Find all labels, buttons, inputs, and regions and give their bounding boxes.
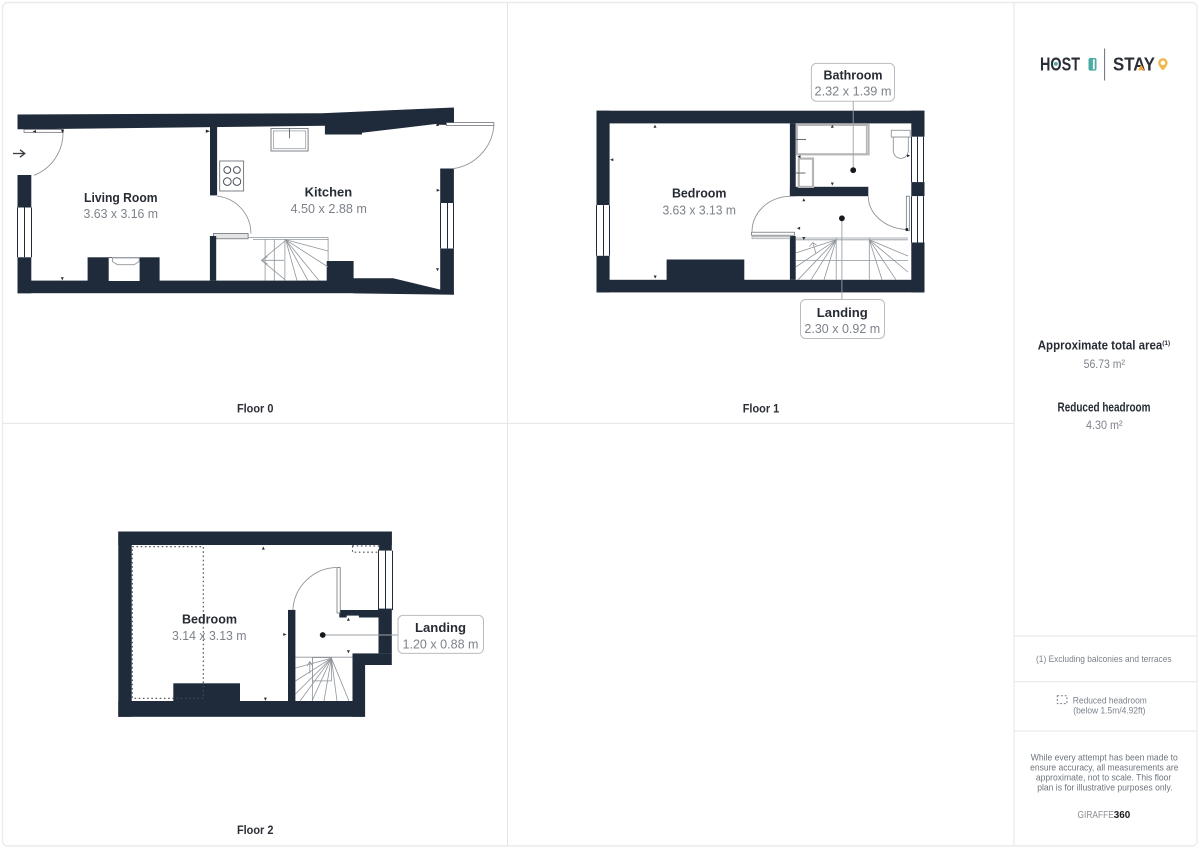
svg-text:2.32 x 1.39 m: 2.32 x 1.39 m [815,84,892,99]
svg-text:Floor 1: Floor 1 [743,401,780,415]
svg-text:Landing: Landing [415,620,466,635]
svg-text:(below 1.5m/4.92ft): (below 1.5m/4.92ft) [1073,706,1145,716]
svg-text:Bathroom: Bathroom [824,68,883,83]
svg-text:Reduced headroom: Reduced headroom [1058,401,1151,415]
svg-text:Floor 0: Floor 0 [237,401,274,415]
svg-text:Bedroom: Bedroom [672,186,727,201]
svg-text:56.73 m²: 56.73 m² [1084,357,1125,371]
svg-text:Floor 2: Floor 2 [237,823,274,837]
svg-text:2.30 x 0.92 m: 2.30 x 0.92 m [804,321,880,336]
svg-text:3.14 x 3.13 m: 3.14 x 3.13 m [172,628,247,643]
svg-text:GIRAFFE360: GIRAFFE360 [1078,810,1131,821]
svg-text:Bedroom: Bedroom [182,612,237,627]
svg-text:3.63 x 3.13 m: 3.63 x 3.13 m [662,203,736,218]
svg-text:1.20 x 0.88 m: 1.20 x 0.88 m [403,636,479,651]
svg-text:(1) Excluding balconies and te: (1) Excluding balconies and terraces [1036,654,1172,665]
svg-text:Kitchen: Kitchen [305,184,353,199]
svg-text:STAY: STAY [1113,54,1155,74]
svg-text:3.63 x 3.16 m: 3.63 x 3.16 m [84,206,159,221]
svg-text:4.50 x 2.88 m: 4.50 x 2.88 m [290,201,367,216]
svg-text:Landing: Landing [817,305,868,320]
svg-text:Reduced headroom: Reduced headroom [1073,695,1147,705]
svg-text:4.30 m²: 4.30 m² [1086,418,1123,432]
svg-text:Approximate total area(1): Approximate total area(1) [1038,339,1170,353]
svg-text:HOST: HOST [1040,54,1080,74]
svg-text:plan is for illustrative purpo: plan is for illustrative purposes only. [1037,783,1172,794]
svg-text:Living Room: Living Room [84,190,158,205]
